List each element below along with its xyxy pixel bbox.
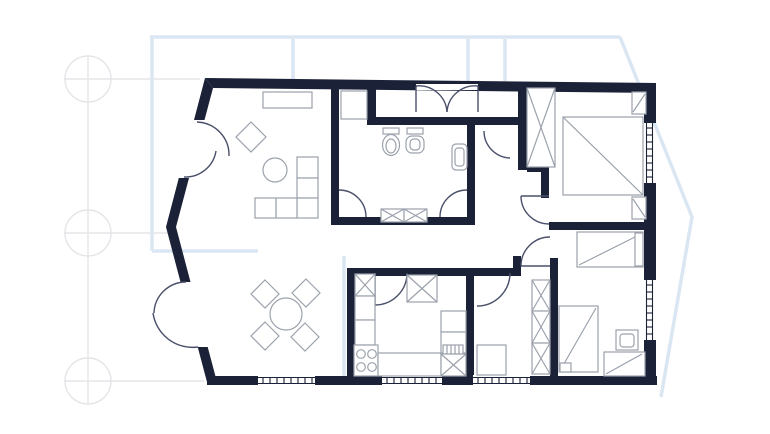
- sideboard: [263, 92, 312, 108]
- washing-machine: [341, 91, 367, 119]
- floor-plan-svg: [0, 0, 770, 434]
- toilet-tank: [383, 128, 399, 134]
- wall-sink-inner: [455, 148, 464, 166]
- stove-burner: [368, 363, 377, 372]
- bed-pillow: [635, 233, 643, 266]
- bathroom-door-swing: [339, 190, 366, 217]
- wall-kitchen-right: [466, 268, 474, 378]
- dining-table: [270, 298, 302, 330]
- master-door-swing: [521, 196, 549, 224]
- sofa-seat: [276, 198, 297, 218]
- sink-drainer: [443, 345, 463, 354]
- wall-right-c: [644, 340, 656, 385]
- bidet-tank: [407, 128, 423, 134]
- stove-burner: [368, 350, 377, 359]
- window-opening: [382, 375, 442, 386]
- sofa-seat: [297, 198, 318, 218]
- window-opening: [473, 375, 530, 386]
- wall-hall-stub: [513, 256, 521, 276]
- bedroom-door-swing: [521, 237, 550, 266]
- bed-pillow: [560, 363, 571, 372]
- wall-master-south: [549, 222, 656, 230]
- wall-closet-bottom: [367, 117, 518, 125]
- bidet-bowl-inner: [410, 139, 420, 150]
- sofa-seat: [255, 198, 276, 218]
- dresser: [477, 345, 506, 375]
- balcony-door-swing: [184, 151, 216, 177]
- stove-burner: [357, 363, 366, 372]
- window-opening: [258, 375, 315, 386]
- terrace-door-swing: [153, 313, 198, 347]
- stove: [354, 345, 378, 376]
- wall-bedroom-left: [550, 258, 558, 382]
- wall-left-lower-a: [166, 227, 191, 282]
- wall-entry-stub: [367, 86, 376, 121]
- side-table: [263, 158, 287, 182]
- midroom-door-swing: [477, 273, 510, 306]
- wall-left-upper-b: [166, 178, 189, 227]
- bathroom-door-swing: [440, 190, 467, 217]
- sofa-seat: [297, 178, 318, 198]
- armchair: [236, 122, 266, 152]
- floor-plan-canvas: [0, 0, 770, 434]
- wall-master-door-post: [541, 172, 549, 198]
- terrace-door-swing: [154, 282, 186, 313]
- wall-bath-right: [467, 125, 475, 225]
- wall-bath-left: [331, 86, 339, 225]
- balcony-door-swing: [197, 122, 229, 156]
- stove-burner: [357, 350, 366, 359]
- sofa-seat: [297, 157, 318, 178]
- kitchen-counter: [355, 320, 375, 345]
- kitchen-counter: [355, 296, 375, 320]
- bedside-table-inner: [620, 334, 634, 347]
- kitchen-unit: [441, 311, 466, 332]
- kitchen-counter: [378, 353, 441, 376]
- kitchen-door-swing: [375, 273, 407, 305]
- hall-door-swing: [484, 131, 510, 158]
- wall-midroom-top: [474, 268, 513, 276]
- toilet-bowl-inner: [386, 139, 396, 153]
- wall-master-left: [518, 82, 527, 170]
